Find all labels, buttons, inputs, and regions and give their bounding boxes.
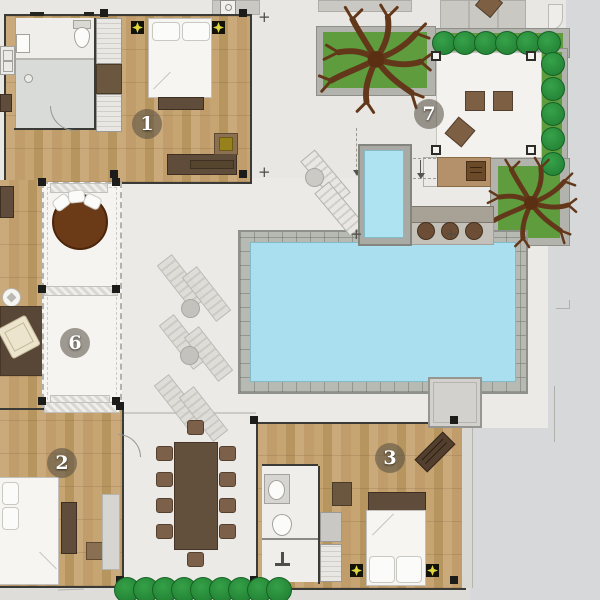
wardrobe xyxy=(96,18,122,64)
wardrobe-cabinet xyxy=(96,64,122,94)
pergola-post xyxy=(431,51,441,61)
laundry-box xyxy=(320,512,342,542)
dining-chair xyxy=(187,420,204,435)
side-table xyxy=(180,346,199,365)
pergola-post xyxy=(526,145,536,155)
swim-bar-counter xyxy=(408,206,494,223)
dining-table xyxy=(174,442,218,550)
side-table xyxy=(181,299,200,318)
pavilion-post xyxy=(38,178,46,186)
kitchen-sink-icon xyxy=(0,46,15,75)
washbasin-icon xyxy=(268,480,285,500)
survey-marker: + xyxy=(258,165,271,180)
pavilion-post xyxy=(112,397,120,405)
wardrobe-panel xyxy=(102,494,120,570)
dimension-arrow-icon xyxy=(417,173,425,179)
wardrobe xyxy=(96,94,122,132)
column-post xyxy=(239,9,247,17)
badge-bedroom-3: 3 xyxy=(375,443,405,473)
column-post xyxy=(250,416,258,424)
badge-bedroom-2: 2 xyxy=(47,448,77,478)
column-post xyxy=(110,170,118,178)
hedge-icon xyxy=(266,577,292,600)
tree-icon xyxy=(315,0,437,116)
dining-chair xyxy=(219,524,236,539)
pillow xyxy=(2,482,19,505)
column-post xyxy=(450,576,458,584)
tree-icon xyxy=(482,152,580,250)
shrub-icon xyxy=(541,52,565,76)
plunge-pool xyxy=(364,150,404,238)
window-band xyxy=(44,402,120,413)
pergola-post xyxy=(526,51,536,61)
table-pattern xyxy=(7,293,17,303)
pillow xyxy=(182,22,210,41)
survey-marker: + xyxy=(258,10,271,25)
wall-unit xyxy=(220,0,236,15)
pergola-beam xyxy=(44,286,118,296)
shrub-icon xyxy=(541,77,565,101)
sink-bowl xyxy=(3,50,13,61)
badge-sala: 6 xyxy=(60,328,90,358)
dining-chair xyxy=(156,446,173,461)
shrub-icon xyxy=(541,127,565,151)
boundary-line xyxy=(554,386,555,442)
bar-stool xyxy=(465,222,483,240)
badge-label: 2 xyxy=(55,452,68,474)
ceiling-spotlight-icon xyxy=(350,564,363,577)
badge-bedroom-1: 1 xyxy=(132,109,162,139)
boundary-corner xyxy=(569,300,570,309)
cabinet xyxy=(0,94,12,112)
column-post xyxy=(450,416,458,424)
badge-label: 3 xyxy=(383,447,396,469)
pavilion-post xyxy=(112,178,120,186)
armchair-seat xyxy=(4,322,34,352)
badge-label: 7 xyxy=(422,103,435,125)
glass-partition xyxy=(16,58,96,60)
door-header xyxy=(30,12,44,16)
kitchen-counter xyxy=(0,186,14,218)
grill-grate xyxy=(470,172,482,173)
desk-drawer xyxy=(190,160,234,169)
pergola-post xyxy=(431,145,441,155)
dimension-line xyxy=(356,128,357,172)
shower-drain-icon xyxy=(24,74,33,83)
column-post xyxy=(239,170,247,178)
survey-marker: + xyxy=(350,227,363,242)
headboard xyxy=(368,492,426,511)
ceiling-spotlight-icon xyxy=(131,21,144,34)
grill-grate xyxy=(470,167,482,168)
side-table xyxy=(305,168,324,187)
seat-cushion xyxy=(493,91,513,111)
bar-stool xyxy=(417,222,435,240)
walkway-band xyxy=(462,422,473,588)
dining-chair xyxy=(219,446,236,461)
badge-label: 1 xyxy=(140,113,153,135)
outside-area-bottom-right xyxy=(470,428,600,600)
boundary-corner xyxy=(556,308,570,309)
bed-bench xyxy=(61,502,77,554)
partition xyxy=(262,538,318,540)
pavilion-post xyxy=(38,285,46,293)
pillow xyxy=(369,556,395,583)
dining-chair xyxy=(219,498,236,513)
survey-marker: + xyxy=(445,227,458,242)
towel-shelf xyxy=(320,544,342,582)
pillow xyxy=(396,556,422,583)
dining-chair xyxy=(156,524,173,539)
swimming-pool xyxy=(250,242,516,382)
dining-chair xyxy=(156,498,173,513)
ceiling-spotlight-icon xyxy=(426,564,439,577)
gate xyxy=(548,4,563,30)
lounge-platform xyxy=(436,52,542,158)
pillow xyxy=(2,507,19,530)
sink-bowl xyxy=(3,61,13,72)
dining-chair xyxy=(187,552,204,567)
bed-bench xyxy=(158,97,204,110)
dining-chair xyxy=(219,472,236,487)
badge-lounge-terrace: 7 xyxy=(414,99,444,129)
shrub-icon xyxy=(541,102,565,126)
dining-chair xyxy=(156,472,173,487)
desk-chair xyxy=(332,482,352,506)
column-post xyxy=(100,9,108,17)
seat-cushion xyxy=(465,91,485,111)
desk xyxy=(167,154,237,175)
floor-plan: 1 2 3 6 7 ++++ xyxy=(0,0,600,600)
wall xyxy=(262,464,318,466)
pillow xyxy=(152,22,180,41)
pavilion-post xyxy=(112,285,120,293)
door-header xyxy=(84,12,94,16)
ceiling-spotlight-icon xyxy=(212,21,225,34)
washbasin-icon xyxy=(16,34,30,53)
shower-valve-icon xyxy=(275,563,290,566)
wall-unit-knob xyxy=(225,4,232,11)
badge-label: 6 xyxy=(68,332,81,354)
pavilion-post xyxy=(38,397,46,405)
table-lamp-icon xyxy=(219,137,233,151)
round-table xyxy=(2,288,21,307)
